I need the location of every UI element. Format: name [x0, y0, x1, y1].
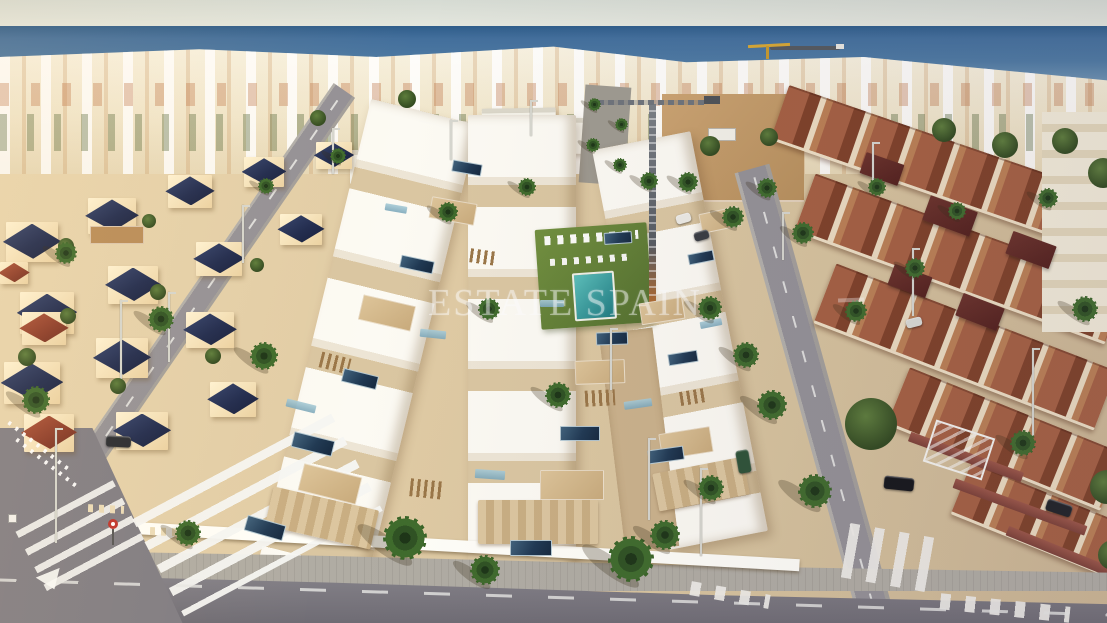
palm-tree [330, 148, 346, 164]
tree [110, 378, 126, 394]
palm-tree [722, 206, 744, 228]
tree [205, 348, 221, 364]
glass-balustrade [285, 398, 316, 413]
solar-panel [667, 350, 699, 367]
roof-terrace [540, 470, 604, 500]
pergola [409, 478, 445, 499]
roof [207, 383, 259, 414]
tree [845, 398, 897, 450]
tree [932, 118, 956, 142]
palm-tree [383, 516, 427, 560]
tree [700, 136, 720, 156]
palm-tree [1010, 430, 1036, 456]
aerial-photo: ESTATE SPAIN [0, 0, 1107, 623]
villa [280, 214, 322, 245]
roof [183, 313, 237, 345]
tree [992, 132, 1018, 158]
streetlight [610, 328, 612, 390]
car [905, 316, 923, 329]
tree [60, 308, 76, 324]
streetlight [1032, 348, 1034, 436]
palm-tree [148, 306, 174, 332]
roof-terrace [575, 359, 626, 385]
palm-tree [948, 202, 966, 220]
loungers [88, 504, 124, 514]
palm-tree [175, 520, 201, 546]
palm-tree [613, 158, 627, 172]
car [675, 212, 692, 225]
tree [1088, 158, 1107, 188]
car [1045, 498, 1073, 517]
streetlight [782, 212, 784, 260]
palm-tree [757, 178, 777, 198]
car [883, 475, 914, 491]
solar-panel [341, 368, 379, 390]
solar-panel [596, 331, 628, 345]
palm-tree [678, 172, 698, 192]
villa [168, 175, 212, 208]
palm-tree [650, 520, 680, 550]
solar-panel [560, 426, 600, 441]
villa [108, 266, 158, 304]
streetlight [55, 428, 57, 543]
tree [18, 348, 36, 366]
tree [760, 128, 778, 146]
villa [0, 262, 28, 284]
palm-tree [798, 474, 832, 508]
palm-tree [586, 138, 600, 152]
watermark: ESTATE SPAIN [400, 281, 730, 325]
roof [277, 215, 324, 242]
solar-panel [451, 159, 483, 176]
palm-tree [757, 390, 787, 420]
palm-tree [905, 258, 925, 278]
villa [96, 338, 148, 378]
palm-tree [733, 342, 759, 368]
roof [93, 340, 151, 375]
palm-tree [615, 118, 628, 131]
terrace [90, 226, 144, 244]
tree [142, 214, 156, 228]
roof [0, 263, 30, 282]
palm-tree [845, 300, 867, 322]
solar-panel [291, 431, 336, 457]
villa [210, 382, 256, 417]
solar-panel [510, 540, 552, 556]
maroon-roof [1005, 231, 1056, 269]
streetlight [450, 120, 452, 160]
car [693, 229, 710, 242]
tree [310, 110, 326, 126]
car [106, 435, 132, 447]
palm-tree [55, 242, 77, 264]
streetlight [242, 205, 244, 263]
pergola [469, 248, 497, 265]
villa [24, 414, 74, 452]
palm-tree [22, 386, 50, 414]
stone-wall [478, 500, 598, 544]
pergola [679, 388, 707, 406]
tree [398, 90, 416, 108]
tree [1090, 470, 1107, 504]
palm-tree [698, 475, 724, 501]
roof [21, 416, 77, 449]
streetlight [872, 142, 874, 182]
roof [193, 243, 245, 273]
palm-tree [438, 202, 458, 222]
car [735, 449, 752, 474]
streetlight [530, 100, 532, 136]
solar-panel [687, 250, 715, 266]
solar-panel [399, 255, 435, 275]
streetlight [120, 300, 122, 385]
palm-tree [792, 222, 814, 244]
palm-tree [1072, 296, 1098, 322]
pergola [585, 389, 616, 407]
tree [1052, 128, 1078, 154]
maroon-roof [955, 293, 1005, 331]
palm-tree [545, 382, 571, 408]
palm-tree [518, 178, 536, 196]
solar-panel [647, 446, 685, 465]
palm-tree [588, 98, 601, 111]
tree [1098, 540, 1107, 570]
tree [150, 284, 166, 300]
villa [196, 242, 242, 276]
palm-tree [1038, 188, 1058, 208]
streetlight [648, 438, 650, 520]
palm-tree [258, 178, 274, 194]
glass-balustrade [475, 469, 506, 480]
villa [186, 312, 234, 348]
glass-balustrade [624, 398, 653, 410]
solar-panel [604, 231, 633, 245]
glass-balustrade [420, 329, 447, 340]
palm-tree [470, 555, 500, 585]
roof [165, 176, 214, 205]
palm-tree [250, 342, 278, 370]
palm-tree [640, 172, 658, 190]
glass-balustrade [385, 203, 408, 214]
palm-tree [868, 178, 886, 196]
tree [250, 258, 264, 272]
